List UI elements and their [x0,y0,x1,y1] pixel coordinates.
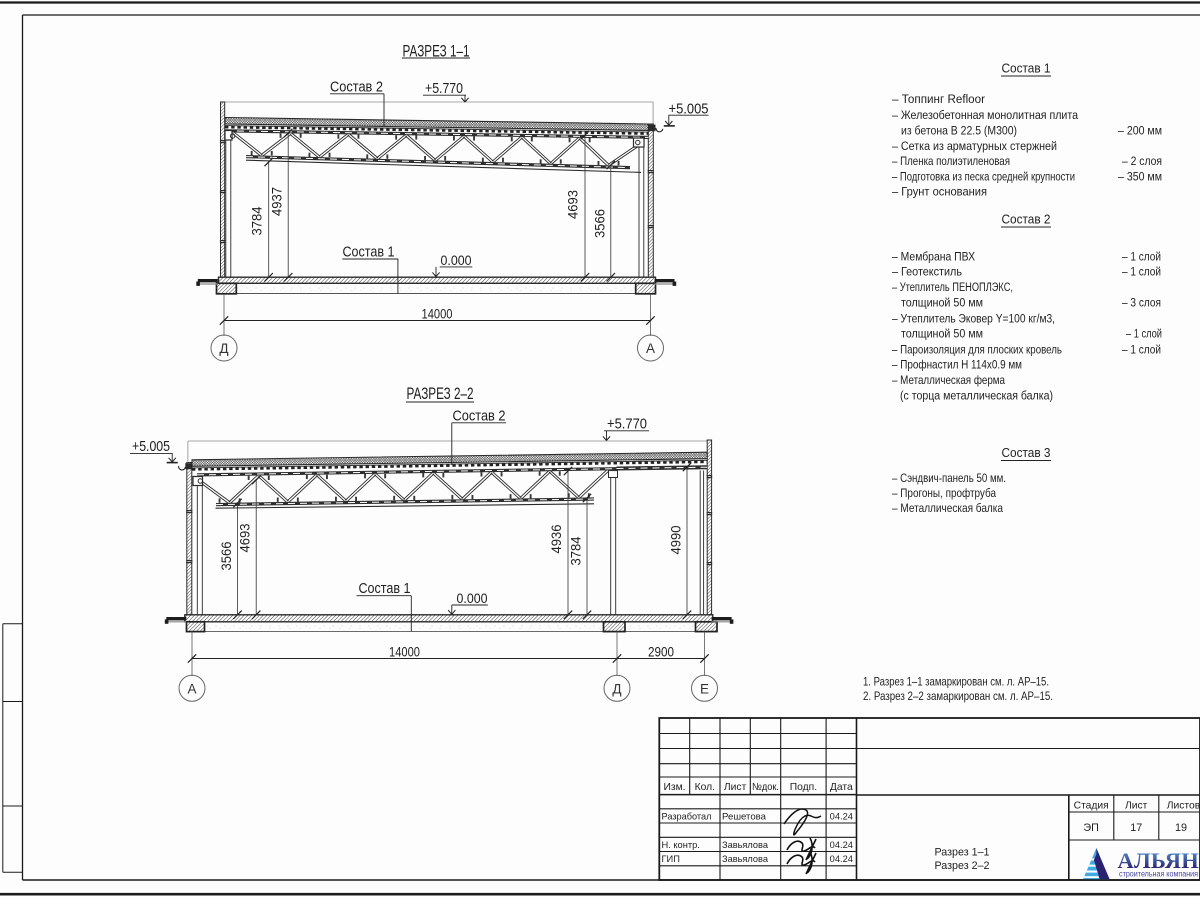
svg-text:ГИП: ГИП [662,854,680,864]
svg-text:Состав 1: Состав 1 [359,581,411,597]
svg-text:– 1 слой: – 1 слой [1122,343,1161,357]
svg-text:– 1 слой: – 1 слой [1122,265,1161,279]
svg-text:+5.005: +5.005 [132,439,170,455]
svg-text:ЭП: ЭП [1083,822,1099,834]
svg-text:А: А [187,681,196,696]
svg-text:– Топпинг Refloor: – Топпинг Refloor [892,92,985,106]
svg-text:4937: 4937 [270,187,285,216]
svg-text:(с торца металлическая балка): (с торца металлическая балка) [900,389,1053,403]
svg-text:+5.770: +5.770 [607,416,647,432]
svg-text:– 3 слоя: – 3 слоя [1122,296,1161,310]
svg-text:+5.770: +5.770 [425,81,463,97]
svg-text:4693: 4693 [566,190,581,219]
svg-text:Состав 1: Состав 1 [343,245,395,261]
svg-text:3784: 3784 [569,536,584,565]
svg-text:4936: 4936 [549,524,564,553]
svg-text:Изм.: Изм. [663,782,685,793]
svg-text:– 350 мм: – 350 мм [1118,170,1162,184]
svg-text:Состав 2: Состав 2 [453,409,506,425]
svg-text:из бетона В 22.5 (М300): из бетона В 22.5 (М300) [901,124,1017,138]
svg-text:толщиной 50 мм: толщиной 50 мм [901,296,983,310]
svg-text:0.000: 0.000 [457,591,488,607]
svg-text:– Грунт основания: – Грунт основания [892,185,987,199]
svg-text:Д: Д [612,681,621,696]
svg-text:2900: 2900 [648,644,674,660]
svg-text:Завьялова: Завьялова [722,854,769,864]
svg-text:строительная компания: строительная компания [1119,869,1198,878]
svg-text:Кол.: Кол. [695,782,715,793]
svg-text:14000: 14000 [422,305,453,321]
svg-text:Разрез 1–1: Разрез 1–1 [935,847,990,859]
svg-text:2. Разрез 2–2 замаркирован см.: 2. Разрез 2–2 замаркирован см. л. АР–15. [863,689,1053,703]
svg-text:Стадия: Стадия [1074,801,1109,812]
svg-text:– Железобетонная монолитная п: – Железобетонная монолитная плита [892,108,1078,122]
svg-text:3784: 3784 [250,206,265,235]
svg-text:– 1 слой: – 1 слой [1122,250,1161,264]
svg-text:Состав 1: Состав 1 [1002,61,1051,76]
svg-text:толщиной 50 мм: толщиной 50 мм [901,327,983,341]
svg-text:Лист: Лист [724,782,747,793]
svg-text:Разработал: Разработал [662,812,712,822]
svg-text:– 200 мм: – 200 мм [1118,124,1162,138]
svg-text:– Подготовка из песка средней: – Подготовка из песка средней крупности [892,170,1075,184]
svg-text:– Пленка полиэтиленовая: – Пленка полиэтиленовая [892,154,1010,168]
svg-text:– Сэндвич-панель 50 мм.: – Сэндвич-панель 50 мм. [892,471,1006,485]
svg-text:Завьялова: Завьялова [722,840,769,850]
svg-text:04.24: 04.24 [830,854,853,864]
svg-text:04.24: 04.24 [830,840,853,850]
svg-text:Решетова: Решетова [722,812,767,822]
svg-text:04.24: 04.24 [830,812,853,822]
svg-text:Состав 3: Состав 3 [1002,445,1051,460]
svg-text:– Сетка из арматурных стержней: – Сетка из арматурных стержней [892,139,1057,153]
svg-text:– Металлическая ферма: – Металлическая ферма [892,373,1005,387]
svg-text:Дата: Дата [830,782,853,793]
svg-text:Состав 2: Состав 2 [1002,212,1051,227]
svg-text:4990: 4990 [669,525,684,554]
svg-text:1. Разрез 1–1 замаркирован см.: 1. Разрез 1–1 замаркирован см. л. АР–15. [863,675,1049,689]
svg-text:– Утеплитель ПЕНОПЛЭКС,: – Утеплитель ПЕНОПЛЭКС, [892,280,1013,294]
svg-text:А: А [646,341,655,356]
svg-text:Н. контр.: Н. контр. [662,840,700,850]
svg-text:Д: Д [219,341,228,356]
svg-text:19: 19 [1175,822,1187,834]
svg-text:Е: Е [700,681,709,696]
svg-text:– Прогоны, профтруба: – Прогоны, профтруба [892,486,996,500]
svg-text:– Металлическая балка: – Металлическая балка [892,501,1003,515]
svg-text:Лист: Лист [1125,801,1148,812]
svg-text:– Мембрана ПВХ: – Мембрана ПВХ [892,250,975,264]
svg-text:3566: 3566 [593,209,608,238]
svg-text:17: 17 [1130,822,1142,834]
svg-text:– Геотекстиль: – Геотекстиль [892,265,962,279]
svg-text:Состав 2: Состав 2 [330,80,383,96]
svg-text:– Профнастил Н 114х0.9 мм: – Профнастил Н 114х0.9 мм [892,358,1022,372]
svg-text:4693: 4693 [238,523,253,552]
svg-text:Листов: Листов [1167,801,1200,812]
svg-text:3566: 3566 [219,541,234,570]
svg-text:РАЗРЕЗ 2–2: РАЗРЕЗ 2–2 [407,384,474,403]
svg-text:№док.: №док. [752,782,779,793]
svg-text:– 2 слоя: – 2 слоя [1122,154,1162,168]
svg-text:– Утеплитель Эковер Y=100 кг/м: – Утеплитель Эковер Y=100 кг/м3, [892,312,1055,326]
svg-text:Подп.: Подп. [790,782,817,793]
svg-text:– Пароизоляция для плоских кро: – Пароизоляция для плоских кровель [892,343,1062,357]
svg-text:Разрез 2–2: Разрез 2–2 [935,860,990,872]
svg-text:– 1 слой: – 1 слой [1126,327,1162,341]
svg-text:14000: 14000 [389,644,420,660]
